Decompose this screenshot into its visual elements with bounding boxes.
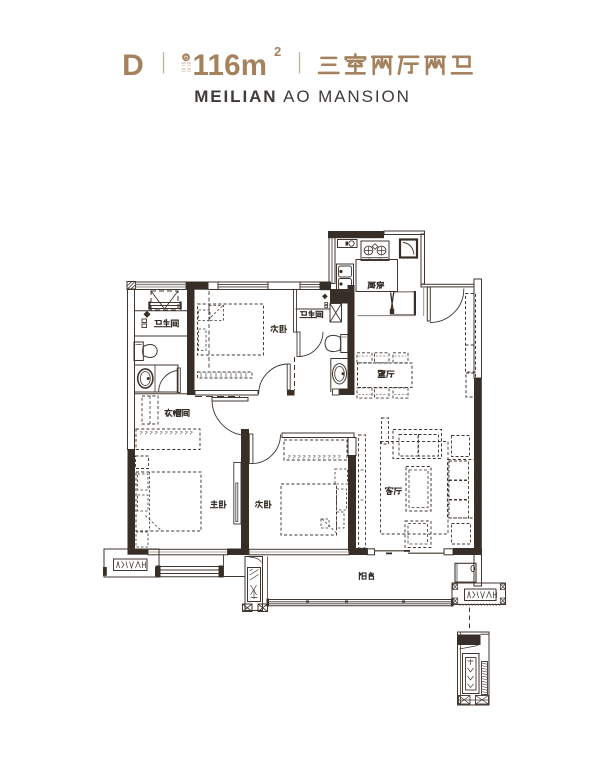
svg-text:D: D: [122, 49, 144, 82]
svg-text:MEILIAN AO MANSION: MEILIAN AO MANSION: [194, 87, 411, 106]
svg-text:2: 2: [274, 44, 281, 59]
svg-text:116m: 116m: [193, 49, 268, 82]
